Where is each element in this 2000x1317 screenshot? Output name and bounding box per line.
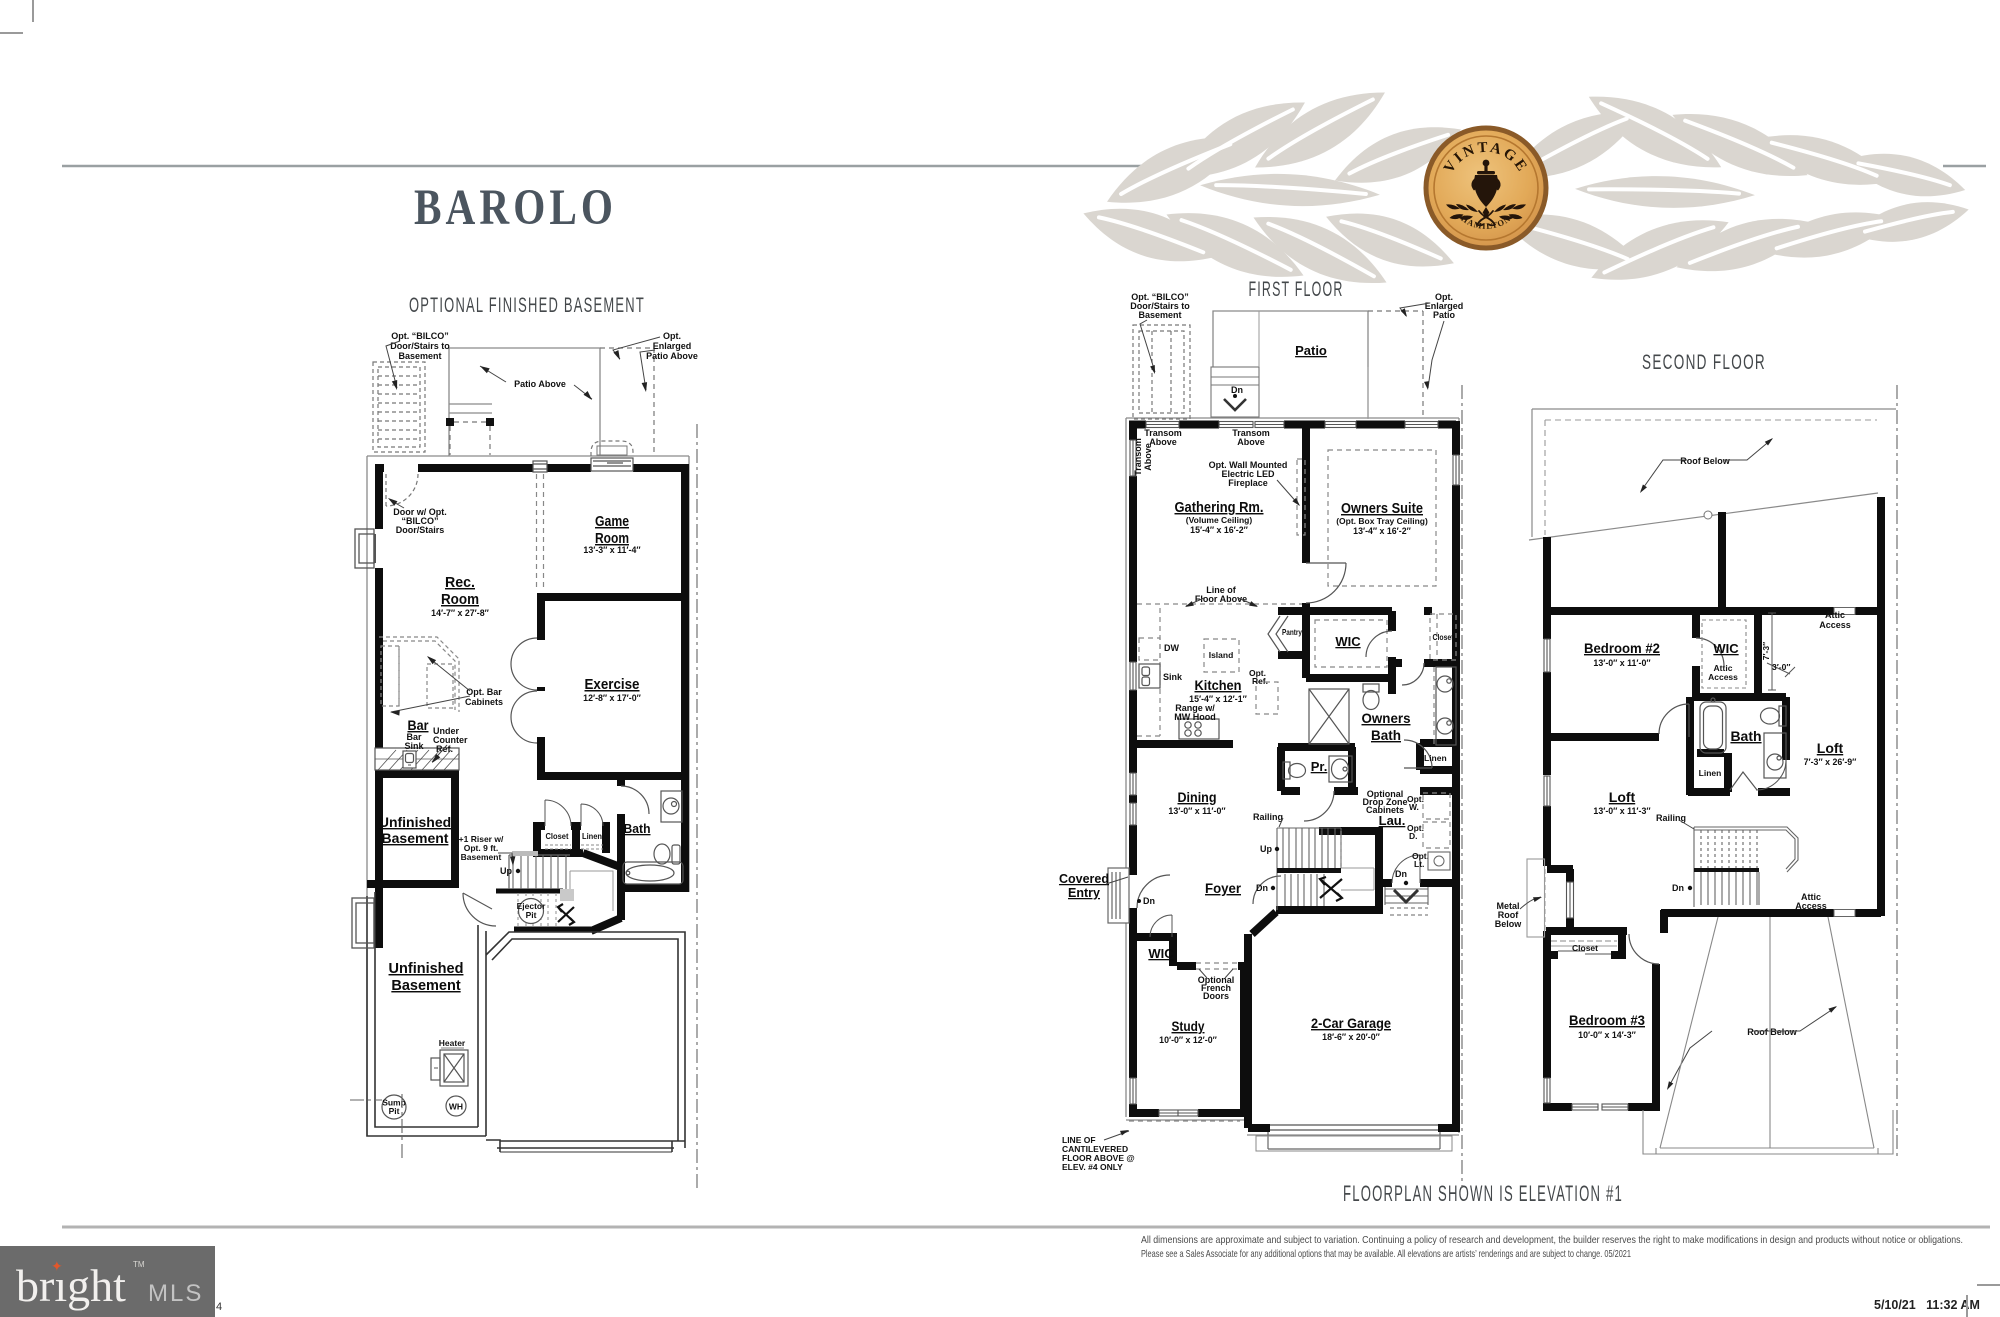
svg-text:Game: Game xyxy=(595,514,629,530)
svg-text:Dining: Dining xyxy=(1178,789,1217,805)
svg-text:14′-7″ x 27′-8″: 14′-7″ x 27′-8″ xyxy=(431,608,489,618)
svg-text:Access: Access xyxy=(1819,620,1851,630)
svg-text:WH: WH xyxy=(449,1102,463,1112)
svg-text:BAROLO: BAROLO xyxy=(414,180,617,236)
svg-text:Covered: Covered xyxy=(1059,872,1109,886)
svg-text:Railing: Railing xyxy=(1253,812,1283,822)
svg-text:Unfinished: Unfinished xyxy=(389,961,464,977)
svg-text:10′-0″ x 12′-0″: 10′-0″ x 12′-0″ xyxy=(1159,1035,1217,1045)
svg-text:WIC: WIC xyxy=(1335,634,1361,649)
svg-text:All dimensions are approximate: All dimensions are approximate and subje… xyxy=(1141,1234,1963,1246)
svg-text:Dn: Dn xyxy=(1231,385,1243,395)
svg-text:Dn: Dn xyxy=(1672,883,1684,893)
svg-text:ELEV. #4 ONLY: ELEV. #4 ONLY xyxy=(1062,1162,1123,1172)
svg-text:Sink: Sink xyxy=(404,741,424,751)
svg-text:7′-3″: 7′-3″ xyxy=(1761,642,1771,660)
svg-text:Opt. “BILCO”: Opt. “BILCO” xyxy=(391,331,449,341)
svg-text:Patio: Patio xyxy=(1433,310,1456,320)
svg-text:Linen: Linen xyxy=(1699,768,1722,778)
svg-text:✦: ✦ xyxy=(51,1258,63,1274)
svg-text:Room: Room xyxy=(441,592,479,608)
svg-text:Linen: Linen xyxy=(582,831,602,841)
svg-text:Entry: Entry xyxy=(1068,886,1100,900)
svg-text:DW: DW xyxy=(1164,643,1179,653)
svg-text:Basement: Basement xyxy=(382,830,449,846)
svg-text:Cabinets: Cabinets xyxy=(1366,805,1404,815)
svg-text:Cabinets: Cabinets xyxy=(465,697,503,707)
svg-text:Bath: Bath xyxy=(1730,728,1761,744)
svg-text:Opt. Bar: Opt. Bar xyxy=(466,687,502,697)
svg-text:Kitchen: Kitchen xyxy=(1195,677,1242,693)
svg-text:Fireplace: Fireplace xyxy=(1228,478,1268,488)
svg-text:Bath: Bath xyxy=(624,821,651,836)
svg-text:Heater: Heater xyxy=(439,1038,466,1048)
svg-text:SECOND FLOOR: SECOND FLOOR xyxy=(1642,351,1766,374)
svg-text:Basement: Basement xyxy=(391,978,460,994)
svg-text:Pantry: Pantry xyxy=(1282,627,1302,637)
svg-text:Exercise: Exercise xyxy=(585,676,640,693)
svg-text:MLS: MLS xyxy=(148,1280,203,1307)
svg-text:4: 4 xyxy=(216,1301,222,1313)
svg-text:Above: Above xyxy=(1143,443,1153,471)
svg-text:Enlarged: Enlarged xyxy=(653,341,692,351)
svg-text:Loft: Loft xyxy=(1817,740,1844,756)
svg-text:(Opt. Box Tray Ceiling): (Opt. Box Tray Ceiling) xyxy=(1336,516,1428,526)
svg-text:Basement: Basement xyxy=(461,852,502,862)
svg-text:Closet: Closet xyxy=(546,831,569,841)
svg-text:2-Car Garage: 2-Car Garage xyxy=(1311,1015,1391,1031)
svg-text:7′-3″ x 26′-9″: 7′-3″ x 26′-9″ xyxy=(1804,757,1858,767)
svg-text:Linen: Linen xyxy=(1424,753,1447,763)
svg-text:Roof Below: Roof Below xyxy=(1680,456,1730,466)
svg-text:Owners: Owners xyxy=(1362,710,1411,726)
svg-text:W.: W. xyxy=(1409,802,1419,812)
svg-text:Ref.: Ref. xyxy=(1252,676,1268,686)
svg-text:10′-0″ x 14′-3″: 10′-0″ x 14′-3″ xyxy=(1578,1030,1636,1040)
svg-text:Dn: Dn xyxy=(1143,896,1155,906)
svg-text:Island: Island xyxy=(1209,650,1234,660)
svg-text:Rec.: Rec. xyxy=(445,575,475,591)
svg-text:Door/Stairs: Door/Stairs xyxy=(396,525,445,535)
svg-text:Patio Above: Patio Above xyxy=(514,379,566,389)
svg-text:Study: Study xyxy=(1172,1018,1205,1034)
svg-text:Owners Suite: Owners Suite xyxy=(1341,501,1423,517)
svg-text:Bedroom #2: Bedroom #2 xyxy=(1584,640,1660,656)
svg-text:brıght: brıght xyxy=(16,1260,126,1311)
svg-text:Roof Below: Roof Below xyxy=(1747,1027,1797,1037)
svg-text:Pr.: Pr. xyxy=(1311,759,1328,774)
svg-text:Door/Stairs to: Door/Stairs to xyxy=(390,341,450,351)
svg-text:Above: Above xyxy=(1149,437,1177,447)
svg-text:Ref.: Ref. xyxy=(436,744,453,754)
svg-text:13′-4″ x 16′-2″: 13′-4″ x 16′-2″ xyxy=(1353,526,1411,536)
svg-text:Bar: Bar xyxy=(408,717,429,733)
svg-text:5/10/21 11:32 AM: 5/10/21 11:32 AM xyxy=(1874,1298,1980,1312)
svg-text:13′-0″ x 11′-0″: 13′-0″ x 11′-0″ xyxy=(1593,658,1651,668)
svg-text:Pit: Pit xyxy=(526,910,537,920)
svg-text:FLOORPLAN SHOWN IS ELEVATION #: FLOORPLAN SHOWN IS ELEVATION #1 xyxy=(1343,1181,1623,1206)
svg-text:13′-0″ x 11′-0″: 13′-0″ x 11′-0″ xyxy=(1168,806,1226,816)
svg-text:12′-8″ x 17′-0″: 12′-8″ x 17′-0″ xyxy=(583,693,641,703)
svg-text:MW Hood: MW Hood xyxy=(1174,712,1215,722)
svg-text:13′-3″ x 11′-4″: 13′-3″ x 11′-4″ xyxy=(583,545,641,555)
svg-text:D.: D. xyxy=(1409,831,1418,841)
svg-text:TM: TM xyxy=(133,1260,145,1269)
svg-text:Patio: Patio xyxy=(1295,343,1327,358)
svg-text:Access: Access xyxy=(1708,672,1738,682)
svg-text:Doors: Doors xyxy=(1203,991,1229,1001)
svg-text:Up: Up xyxy=(500,866,512,876)
svg-text:(Volume Ceiling): (Volume Ceiling) xyxy=(1186,515,1253,525)
svg-text:FIRST FLOOR: FIRST FLOOR xyxy=(1249,278,1344,301)
svg-text:Bedroom #3: Bedroom #3 xyxy=(1569,1012,1645,1028)
svg-text:Pit: Pit xyxy=(389,1106,400,1116)
svg-text:Unfinished: Unfinished xyxy=(379,814,451,830)
svg-text:Basement: Basement xyxy=(1138,310,1181,320)
svg-text:Attic: Attic xyxy=(1825,610,1845,620)
svg-text:13′-0″ x 11′-3″: 13′-0″ x 11′-3″ xyxy=(1593,806,1651,816)
svg-text:Dn: Dn xyxy=(1256,883,1268,893)
svg-text:Sink: Sink xyxy=(1163,672,1183,682)
svg-text:Opt.: Opt. xyxy=(663,331,681,341)
svg-text:Bath: Bath xyxy=(1371,727,1401,743)
svg-text:Gathering Rm.: Gathering Rm. xyxy=(1175,500,1264,516)
svg-text:WIC: WIC xyxy=(1713,641,1739,656)
svg-text:Transom: Transom xyxy=(1133,438,1143,476)
svg-text:Please see a Sales Associate f: Please see a Sales Associate for any add… xyxy=(1141,1248,1631,1260)
svg-text:18′-6″ x 20′-0″: 18′-6″ x 20′-0″ xyxy=(1322,1032,1380,1042)
svg-text:WIC: WIC xyxy=(1148,946,1174,961)
svg-text:Lt.: Lt. xyxy=(1414,859,1424,869)
svg-text:Basement: Basement xyxy=(398,351,441,361)
svg-text:Closet: Closet xyxy=(1572,943,1598,953)
svg-text:Dn: Dn xyxy=(1395,869,1407,879)
svg-text:3′-0″: 3′-0″ xyxy=(1772,662,1790,672)
svg-text:Access: Access xyxy=(1795,901,1827,911)
svg-text:Up: Up xyxy=(1260,844,1272,854)
svg-text:Closet: Closet xyxy=(1433,632,1454,642)
svg-text:15′-4″ x 16′-2″: 15′-4″ x 16′-2″ xyxy=(1190,525,1248,535)
svg-text:Above: Above xyxy=(1237,437,1265,447)
svg-text:Loft: Loft xyxy=(1609,789,1636,805)
svg-text:Foyer: Foyer xyxy=(1205,880,1242,896)
svg-text:Lau.: Lau. xyxy=(1379,813,1406,828)
svg-text:OPTIONAL FINISHED BASEMENT: OPTIONAL FINISHED BASEMENT xyxy=(409,294,645,317)
svg-text:Patio Above: Patio Above xyxy=(646,351,698,361)
svg-text:Below: Below xyxy=(1495,919,1523,929)
